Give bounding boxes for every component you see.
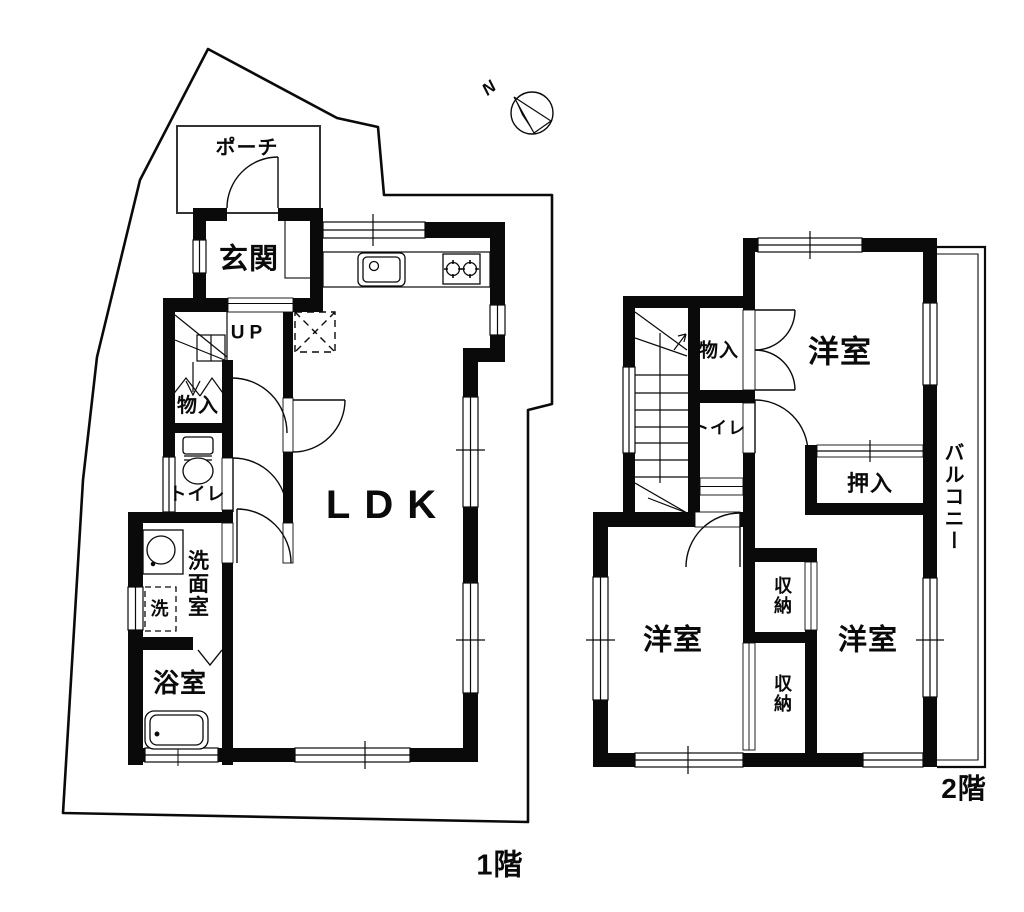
floor2-walls	[593, 238, 937, 767]
floor1-title: 1階	[476, 852, 523, 881]
room-label-balcony: バルコニー	[942, 442, 962, 552]
washbasin-icon	[143, 530, 183, 574]
room-label-closet-lower: 収納	[773, 674, 791, 714]
room-label-bedroom-left: 洋室	[643, 627, 703, 656]
room-label-bathroom: 浴室	[153, 670, 207, 696]
room-label-oshiire: 押入	[847, 473, 893, 495]
room-label-washroom: 洗面室	[187, 550, 208, 619]
floor2-door-frames	[695, 310, 817, 750]
floorplan-canvas: ポーチ 玄関 UP 物入 トイレ 洗面室 洗 浴室 LDK 1階 物入 トイレ …	[0, 0, 1024, 912]
compass-icon	[511, 92, 553, 134]
floorplan-drawing	[0, 0, 1024, 912]
floor2-stairs	[635, 312, 688, 513]
toilet-icon	[183, 437, 213, 484]
oshiire-sliding-door	[817, 440, 923, 462]
room-label-porch: ポーチ	[216, 138, 279, 158]
room-label-toilet-2f: トイレ	[692, 420, 746, 437]
floor-hatch-icon	[295, 312, 335, 352]
room-label-entrance: 玄関	[219, 246, 279, 275]
washer-label: 洗	[151, 600, 170, 618]
room-label-storage-1f: 物入	[177, 396, 219, 416]
room-label-ldk: LDK	[326, 485, 450, 525]
stairs-up-label: UP	[231, 324, 267, 343]
folding-door-icon	[172, 378, 225, 396]
room-label-storage-2f: 物入	[699, 342, 739, 361]
room-label-toilet-1f: トイレ	[169, 485, 226, 503]
shoe-cabinet	[285, 217, 313, 278]
room-label-bedroom-top: 洋室	[808, 337, 872, 368]
room-label-closet-upper: 収納	[773, 576, 791, 616]
kitchen-counter	[323, 252, 490, 287]
floor2-windows	[586, 231, 944, 774]
floor1-stairs	[172, 298, 227, 396]
bath-folding-door	[198, 650, 222, 665]
floor2-title: 2階	[941, 775, 987, 803]
room-label-bedroom-right: 洋室	[838, 627, 898, 656]
